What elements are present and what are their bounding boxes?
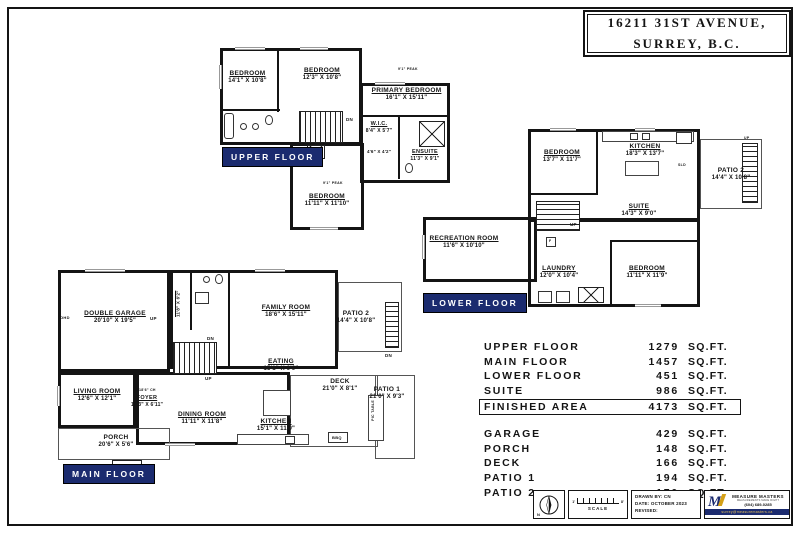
area-label: LOWER FLOOR: [484, 370, 637, 382]
stairs: [173, 342, 217, 374]
area-label: PATIO 1: [484, 472, 637, 484]
room-label-primary-bedroom: PRIMARY BEDROOM 16'1" X 15'11": [365, 87, 448, 103]
window: [300, 47, 328, 50]
window: [57, 386, 60, 406]
finished-area-total-row: FINISHED AREA 4173 SQ.FT.: [479, 399, 741, 415]
room-label-small-room: 4'6" X 4'2": [361, 149, 397, 155]
drawn-by: DRAWN BY: CN: [635, 494, 671, 501]
room-label-bedroom-1: BEDROOM 14'1" X 10'8": [220, 70, 275, 86]
title-block: 16211 31ST AVENUE, SURREY, B.C.: [583, 10, 791, 57]
toilet-icon: [405, 163, 413, 173]
drawn-date: DATE: OCTOBER 2023: [635, 501, 687, 508]
room-label-dining-room: DINING ROOM 11'11" X 11'8": [156, 411, 248, 427]
partition: [596, 129, 598, 195]
window: [310, 227, 338, 230]
area-label: FINISHED AREA: [484, 401, 637, 413]
window: [235, 47, 265, 50]
stairs-direction-label: DN: [207, 336, 214, 341]
peak-height-note: 9'1" PEAK: [398, 67, 418, 71]
lower-floor-plan: UP UP F SLD BEDROOM 13'7" X 11'7" KITCHE…: [420, 125, 765, 315]
address-line-1: 16211 31ST AVENUE,: [588, 13, 786, 33]
partition: [228, 270, 230, 369]
compass-icon: [538, 494, 560, 516]
stairs: [385, 302, 399, 348]
table-row: PORCH 148 SQ.FT.: [484, 443, 736, 455]
room-label-patio-2: PATIO 2 14'4" X 10'8": [328, 310, 384, 326]
area-label: PORCH: [484, 443, 637, 455]
partition: [190, 270, 192, 330]
table-row: SUITE 986 SQ.FT.: [484, 385, 736, 397]
drawing-info-cell: DRAWN BY: CN DATE: OCTOBER 2023 REVISED:: [631, 490, 701, 519]
area-value: 986: [637, 385, 679, 397]
area-unit: SQ.FT.: [688, 443, 736, 455]
room-label-bedroom-3: BEDROOM 11'11" X 11'10": [292, 193, 362, 209]
area-value: 1457: [637, 356, 679, 368]
upper-floor-plan: DN BEDROOM 14'1" X 10'8" BEDROOM 12'3" X…: [215, 45, 450, 240]
toilet-icon: [215, 274, 223, 284]
area-unit: SQ.FT.: [688, 356, 736, 368]
sink-icon: [240, 123, 247, 130]
company-phone: (604) 689-0285: [730, 502, 786, 507]
address-line-2: SURREY, B.C.: [588, 34, 786, 54]
main-floor-tag: MAIN FLOOR: [63, 464, 155, 484]
room-label-bedroom-2: BEDROOM 12'3" X 10'8": [290, 67, 354, 83]
window: [255, 269, 285, 272]
shower-icon: [578, 287, 604, 303]
north-arrow-cell: N: [533, 490, 565, 519]
room-label-family-room: FAMILY ROOM 18'6" X 15'11": [240, 304, 332, 320]
room-label-laundry: LAUNDRY 12'0" X 10'4": [528, 265, 590, 281]
window: [550, 128, 576, 131]
table-row: LOWER FLOOR 451 SQ.FT.: [484, 370, 736, 382]
partition: [398, 117, 400, 179]
kitchen-island: [263, 390, 291, 416]
stove-icon: [285, 436, 295, 444]
washer-icon: [538, 291, 552, 303]
dryer-icon: [556, 291, 570, 303]
company-logo-cell: M MEASURE MASTERS MEASUREMENTS MADE RIGH…: [704, 490, 790, 519]
area-value: 451: [637, 370, 679, 382]
area-value: 1279: [637, 341, 679, 353]
scale-label: SCALE: [588, 506, 608, 511]
main-floor-plan: DN UP UP DN UP PIC TABLE BBQ OHD 18'6" C…: [55, 262, 417, 492]
bathtub-icon: [224, 113, 234, 139]
upper-floor-tag: UPPER FLOOR: [222, 147, 323, 167]
room-label-kitchen: KITCHEN 18'3" X 13'7": [612, 143, 678, 159]
table-row: PATIO 1 194 SQ.FT.: [484, 472, 736, 484]
scale-bar: [577, 498, 619, 504]
table-row: GARAGE 429 SQ.FT.: [484, 428, 736, 440]
area-value: 148: [637, 443, 679, 455]
room-label-living-room: LIVING ROOM 12'6" X 12'1": [63, 388, 131, 404]
stove-icon: [630, 133, 638, 140]
area-label: SUITE: [484, 385, 637, 397]
ceiling-height-note: 18'6" CH: [139, 388, 156, 392]
area-value: 194: [637, 472, 679, 484]
sink-icon: [252, 123, 259, 130]
partition: [362, 115, 448, 117]
window: [422, 235, 425, 259]
area-label: UPPER FLOOR: [484, 341, 637, 353]
area-value: 4173: [637, 401, 679, 413]
room-label-eating: EATING 15'1" X 9'9": [241, 358, 321, 374]
partition: [528, 193, 598, 195]
measure-masters-logo-icon: M: [708, 493, 727, 508]
partition: [277, 48, 279, 112]
area-unit: SQ.FT.: [688, 401, 736, 413]
area-value: 166: [637, 457, 679, 469]
scale-start: 1': [572, 500, 575, 504]
room-label-foyer: FOYER 10'3" X 6'11": [125, 395, 169, 409]
area-unit: SQ.FT.: [688, 428, 736, 440]
stairs-direction-label: DN: [385, 353, 392, 358]
window: [635, 304, 661, 307]
table-row: DECK 166 SQ.FT.: [484, 457, 736, 469]
sink-icon: [642, 133, 650, 140]
floor-plan-sheet: 16211 31ST AVENUE, SURREY, B.C. DN BEDRO…: [0, 0, 800, 533]
area-unit: SQ.FT.: [688, 370, 736, 382]
north-label: N: [537, 512, 540, 517]
area-label: MAIN FLOOR: [484, 356, 637, 368]
area-unit: SQ.FT.: [688, 457, 736, 469]
wall: [528, 219, 700, 307]
room-label-bedroom: BEDROOM 13'7" X 11'7": [530, 149, 594, 165]
partition: [220, 109, 280, 111]
partition: [610, 240, 700, 242]
fridge-icon: [676, 132, 692, 144]
stairs-direction-label: DN: [346, 117, 353, 122]
window: [165, 443, 195, 446]
partition: [610, 240, 612, 305]
lower-floor-tag: LOWER FLOOR: [423, 293, 527, 313]
room-label-recreation-room: RECREATION ROOM 11'6" X 10'10": [426, 235, 502, 251]
stairs-direction-label: UP: [570, 222, 577, 227]
kitchen-island: [625, 161, 659, 176]
furnace-label: F: [549, 239, 551, 243]
area-unit: SQ.FT.: [688, 472, 736, 484]
window: [375, 82, 405, 85]
scale-end: 8': [621, 500, 624, 504]
room-label-patio-1: PATIO 1 21'0" X 9'3": [361, 386, 413, 402]
room-label-patio-2: PATIO 2 14'4" X 10'8": [704, 167, 758, 183]
table-row: MAIN FLOOR 1457 SQ.FT.: [484, 356, 736, 368]
stairs-direction-label: UP: [744, 136, 749, 140]
bbq-label: BBQ: [332, 435, 342, 440]
sink-icon: [203, 276, 210, 283]
room-label-kitchen: KITCHEN 15'1" X 11'9": [237, 418, 315, 434]
area-value: 429: [637, 428, 679, 440]
vanity-icon: [195, 292, 209, 304]
area-label: DECK: [484, 457, 637, 469]
stairs: [299, 111, 343, 143]
room-label-double-garage: DOUBLE GARAGE 20'10" X 19'5": [67, 310, 163, 326]
room-label-wic: W.I.C. 8'4" X 5'7": [362, 121, 396, 135]
toilet-icon: [265, 115, 273, 125]
room-label-bedroom: BEDROOM 11'11" X 11'9": [616, 265, 678, 281]
window: [85, 269, 125, 272]
room-label-laundry: LAUNDRY 11'8" X 6'2": [169, 276, 189, 332]
room-label-suite: SUITE 14'3" X 9'0": [610, 203, 668, 219]
room-label-porch: PORCH 20'6" X 5'6": [83, 434, 149, 450]
table-row: UPPER FLOOR 1279 SQ.FT.: [484, 341, 736, 353]
picnic-table-label: PIC TABLE: [371, 400, 375, 421]
sliding-door-label: SLD: [678, 163, 686, 167]
peak-height-note: 9'1" PEAK: [323, 181, 343, 185]
footer-strip: N 1' 8' SCALE DRAWN BY: CN DATE: OCTOBER…: [533, 490, 790, 519]
area-label: GARAGE: [484, 428, 637, 440]
area-unit: SQ.FT.: [688, 341, 736, 353]
kitchen-counter: [237, 434, 309, 445]
area-unit: SQ.FT.: [688, 385, 736, 397]
scale-bar-cell: 1' 8' SCALE: [568, 490, 628, 519]
stairs-direction-label: UP: [205, 376, 212, 381]
area-table: UPPER FLOOR 1279 SQ.FT. MAIN FLOOR 1457 …: [484, 341, 736, 501]
revised: REVISED:: [635, 508, 658, 515]
